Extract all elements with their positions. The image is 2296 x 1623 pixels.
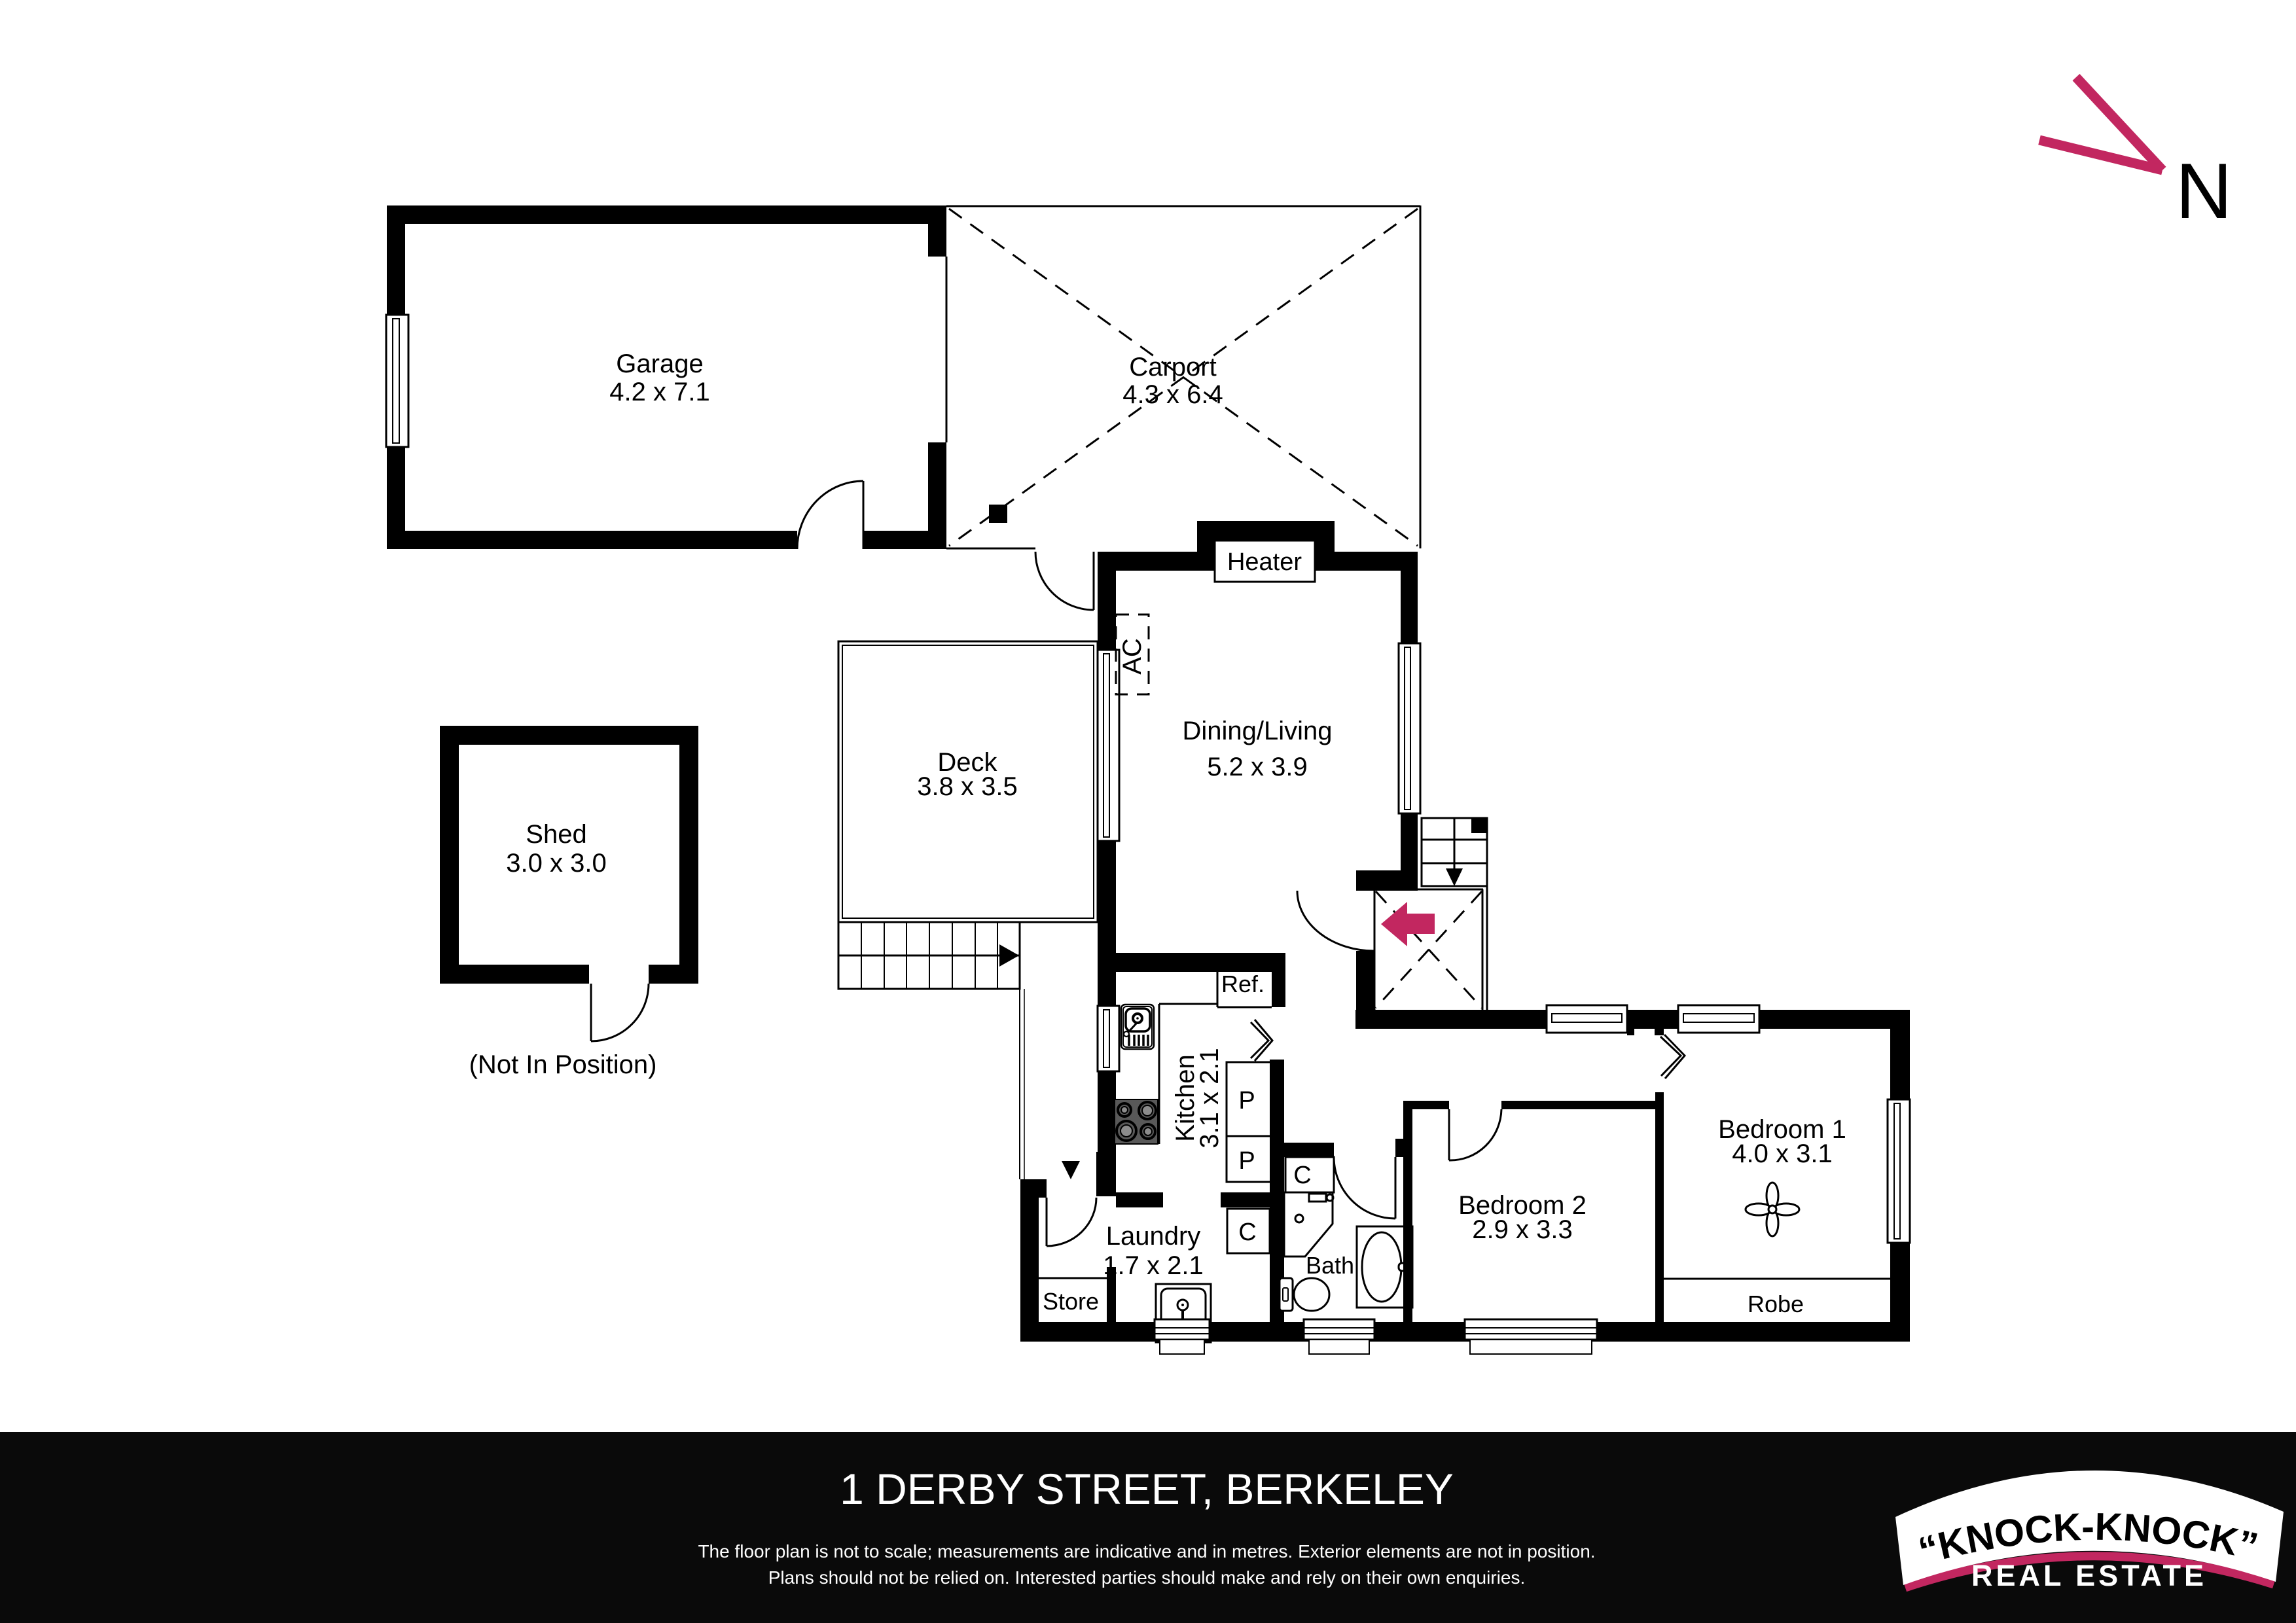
svg-text:N: N — [2176, 147, 2233, 235]
svg-text:5.2 x 3.9: 5.2 x 3.9 — [1207, 753, 1307, 781]
svg-text:Ref.: Ref. — [1221, 971, 1265, 997]
svg-text:4.0 x 3.1: 4.0 x 3.1 — [1732, 1139, 1832, 1168]
svg-text:C: C — [1238, 1219, 1256, 1246]
svg-text:4.2 x 7.1: 4.2 x 7.1 — [609, 378, 709, 406]
svg-text:Bath: Bath — [1306, 1252, 1354, 1279]
svg-text:P: P — [1238, 1147, 1255, 1175]
svg-text:3.8 x 3.5: 3.8 x 3.5 — [917, 772, 1017, 801]
svg-text:The floor plan is not to scale: The floor plan is not to scale; measurem… — [698, 1541, 1595, 1561]
svg-text:Dining/Living: Dining/Living — [1182, 717, 1332, 745]
svg-text:Store: Store — [1043, 1288, 1099, 1315]
svg-text:2.9 x 3.3: 2.9 x 3.3 — [1472, 1215, 1572, 1244]
svg-text:Laundry: Laundry — [1106, 1222, 1201, 1251]
svg-text:P: P — [1238, 1087, 1255, 1115]
svg-text:1.7 x 2.1: 1.7 x 2.1 — [1103, 1251, 1203, 1280]
svg-text:Garage: Garage — [616, 349, 703, 378]
svg-text:(Not In Position): (Not In Position) — [469, 1050, 657, 1079]
svg-text:4.3 x 6.4: 4.3 x 6.4 — [1122, 380, 1223, 409]
svg-text:3.1 x 2.1: 3.1 x 2.1 — [1195, 1048, 1224, 1148]
svg-text:1 DERBY STREET, BERKELEY: 1 DERBY STREET, BERKELEY — [840, 1465, 1454, 1513]
svg-text:Carport: Carport — [1129, 353, 1216, 382]
svg-text:3.0 x 3.0: 3.0 x 3.0 — [506, 849, 606, 878]
svg-text:Robe: Robe — [1748, 1291, 1804, 1317]
svg-text:Heater: Heater — [1227, 548, 1302, 576]
svg-text:REAL ESTATE: REAL ESTATE — [1971, 1559, 2207, 1592]
svg-text:Plans should not be relied on.: Plans should not be relied on. Intereste… — [768, 1567, 1525, 1588]
svg-text:C: C — [1293, 1162, 1311, 1189]
svg-text:AC: AC — [1118, 638, 1147, 675]
svg-text:Shed: Shed — [526, 820, 586, 849]
